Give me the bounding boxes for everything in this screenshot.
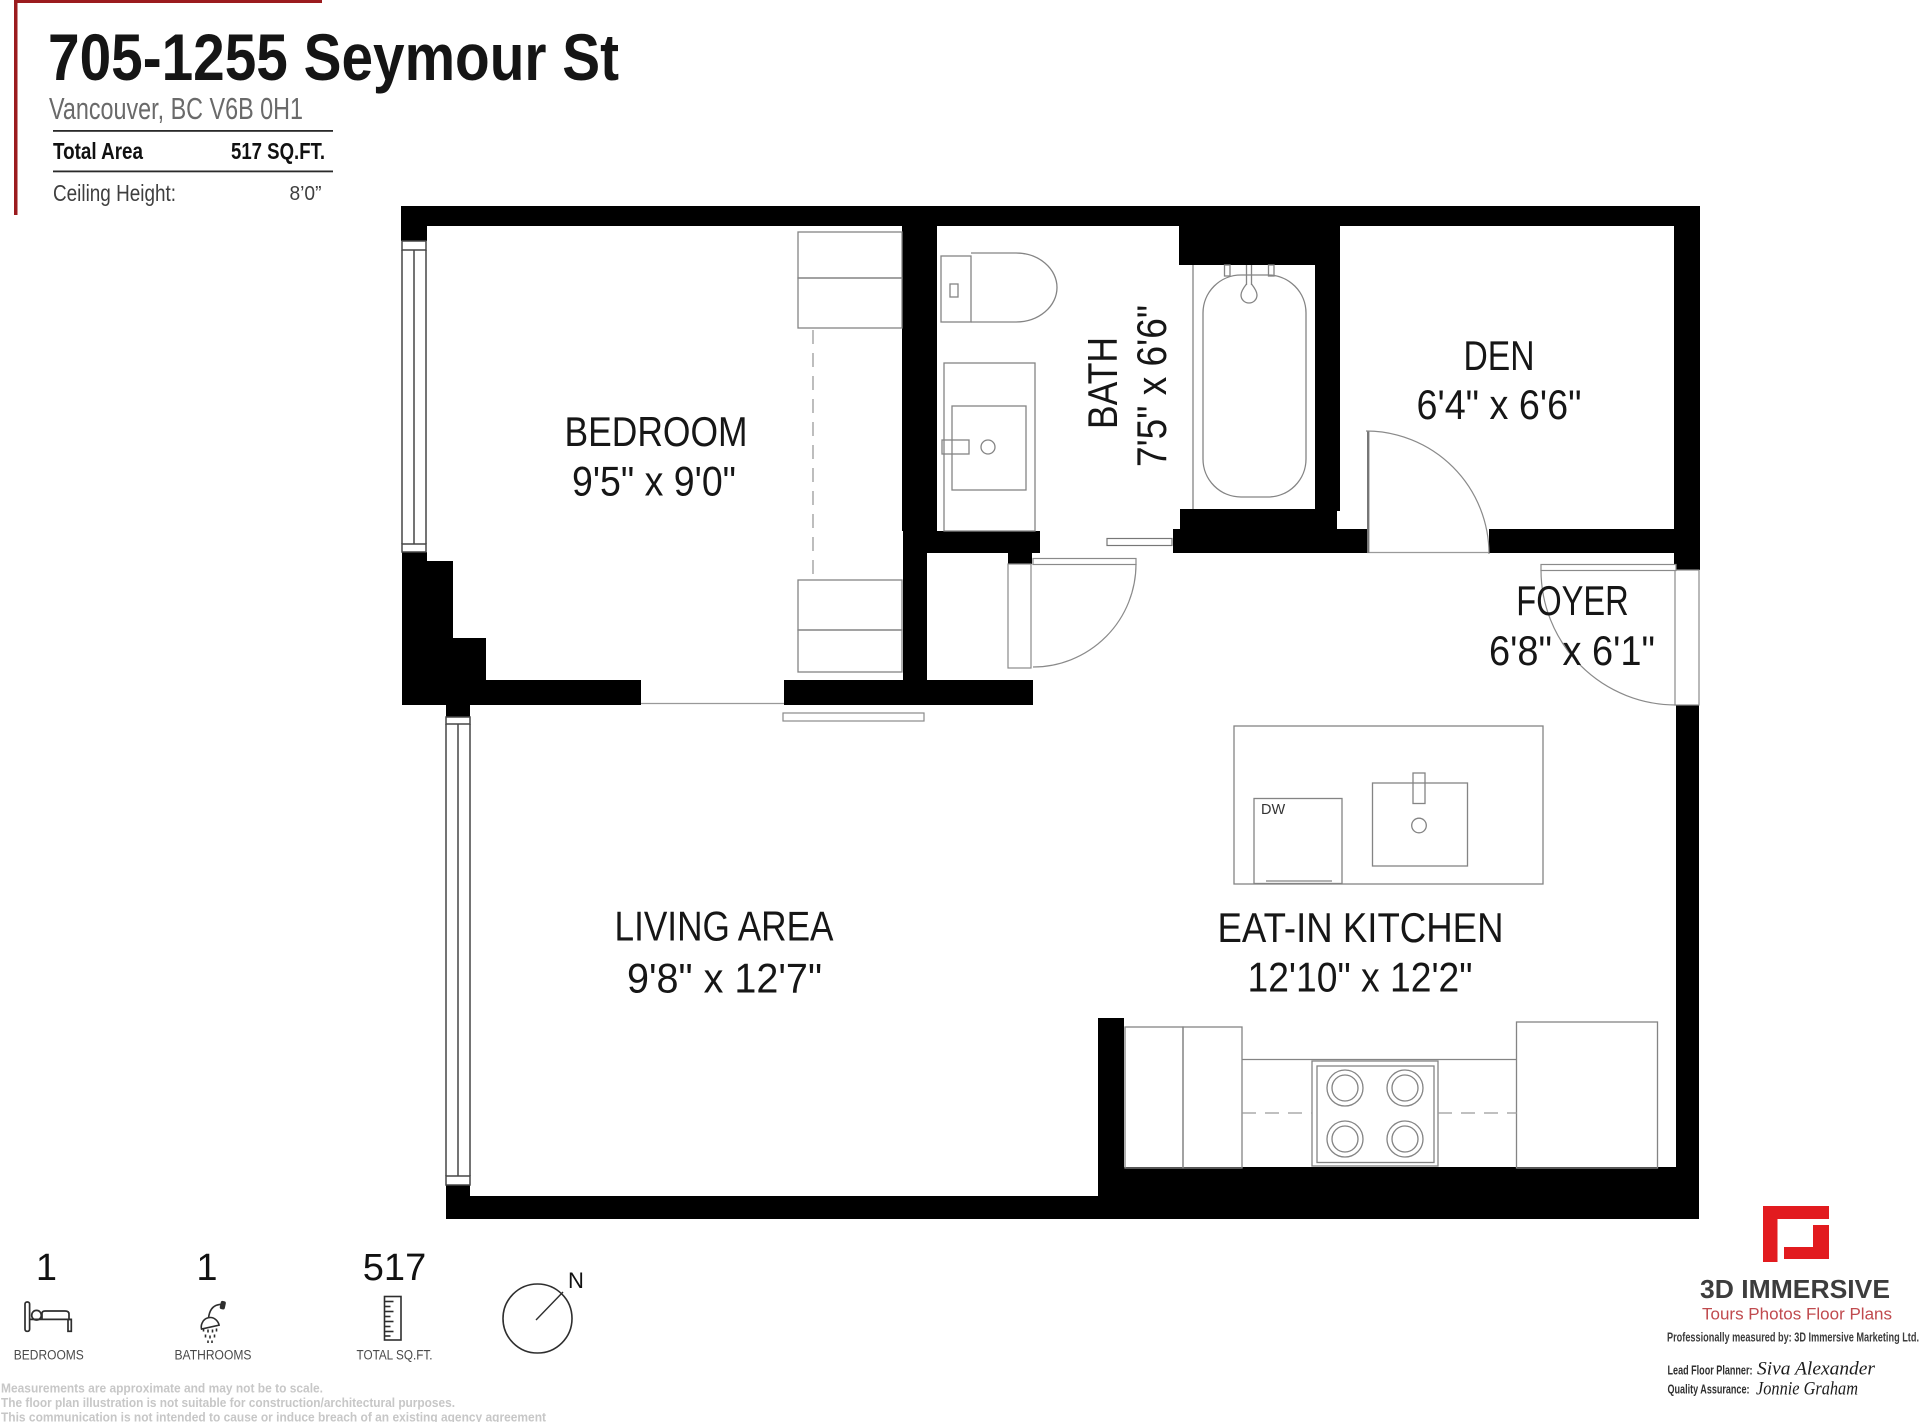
svg-text:9'5" x 9'0": 9'5" x 9'0" <box>572 458 736 505</box>
svg-text:Jonnie Graham: Jonnie Graham <box>1756 1379 1858 1400</box>
svg-text:517: 517 <box>363 1247 426 1289</box>
svg-text:1: 1 <box>36 1247 57 1289</box>
svg-text:BATH: BATH <box>1079 337 1126 429</box>
svg-text:6'8" x 6'1": 6'8" x 6'1" <box>1489 627 1655 674</box>
svg-text:Quality Assurance:: Quality Assurance: <box>1668 1382 1750 1397</box>
svg-text:705-1255 Seymour St: 705-1255 Seymour St <box>48 20 619 94</box>
svg-text:9'8" x 12'7": 9'8" x 12'7" <box>627 955 822 1002</box>
svg-text:BEDROOM: BEDROOM <box>565 408 748 455</box>
svg-text:FOYER: FOYER <box>1516 577 1629 624</box>
svg-text:Siva Alexander: Siva Alexander <box>1757 1359 1876 1380</box>
svg-text:Total Area: Total Area <box>53 138 143 164</box>
svg-text:N: N <box>568 1268 584 1293</box>
svg-text:Ceiling Height:: Ceiling Height: <box>53 180 176 206</box>
svg-text:The floor plan illustration is: The floor plan illustration is not suita… <box>1 1395 455 1410</box>
svg-text:BEDROOMS: BEDROOMS <box>14 1348 84 1363</box>
svg-text:1: 1 <box>196 1247 217 1289</box>
svg-text:Measurements are approximate a: Measurements are approximate and may not… <box>1 1381 323 1396</box>
svg-text:This communication is not inte: This communication is not intended to ca… <box>1 1410 547 1422</box>
svg-text:517 SQ.FT.: 517 SQ.FT. <box>231 138 325 164</box>
svg-text:TOTAL SQ.FT.: TOTAL SQ.FT. <box>357 1348 433 1363</box>
svg-text:DEN: DEN <box>1464 332 1535 379</box>
svg-text:EAT-IN KITCHEN: EAT-IN KITCHEN <box>1218 904 1504 951</box>
svg-text:8’0”: 8’0” <box>290 182 322 205</box>
svg-text:DW: DW <box>1261 802 1285 818</box>
svg-text:Vancouver, BC V6B 0H1: Vancouver, BC V6B 0H1 <box>49 91 303 126</box>
svg-text:Professionally measured by: 3D: Professionally measured by: 3D Immersive… <box>1667 1331 1919 1345</box>
svg-text:Tours Photos Floor Plans: Tours Photos Floor Plans <box>1702 1306 1892 1324</box>
svg-text:7'5" x 6'6": 7'5" x 6'6" <box>1128 305 1175 467</box>
svg-text:Lead Floor Planner:: Lead Floor Planner: <box>1668 1363 1753 1378</box>
svg-text:6'4" x 6'6": 6'4" x 6'6" <box>1417 381 1582 428</box>
svg-text:12'10" x 12'2": 12'10" x 12'2" <box>1248 954 1473 1001</box>
svg-text:BATHROOMS: BATHROOMS <box>175 1348 252 1363</box>
svg-text:3D IMMERSIVE: 3D IMMERSIVE <box>1700 1274 1890 1304</box>
svg-text:LIVING AREA: LIVING AREA <box>615 903 834 950</box>
